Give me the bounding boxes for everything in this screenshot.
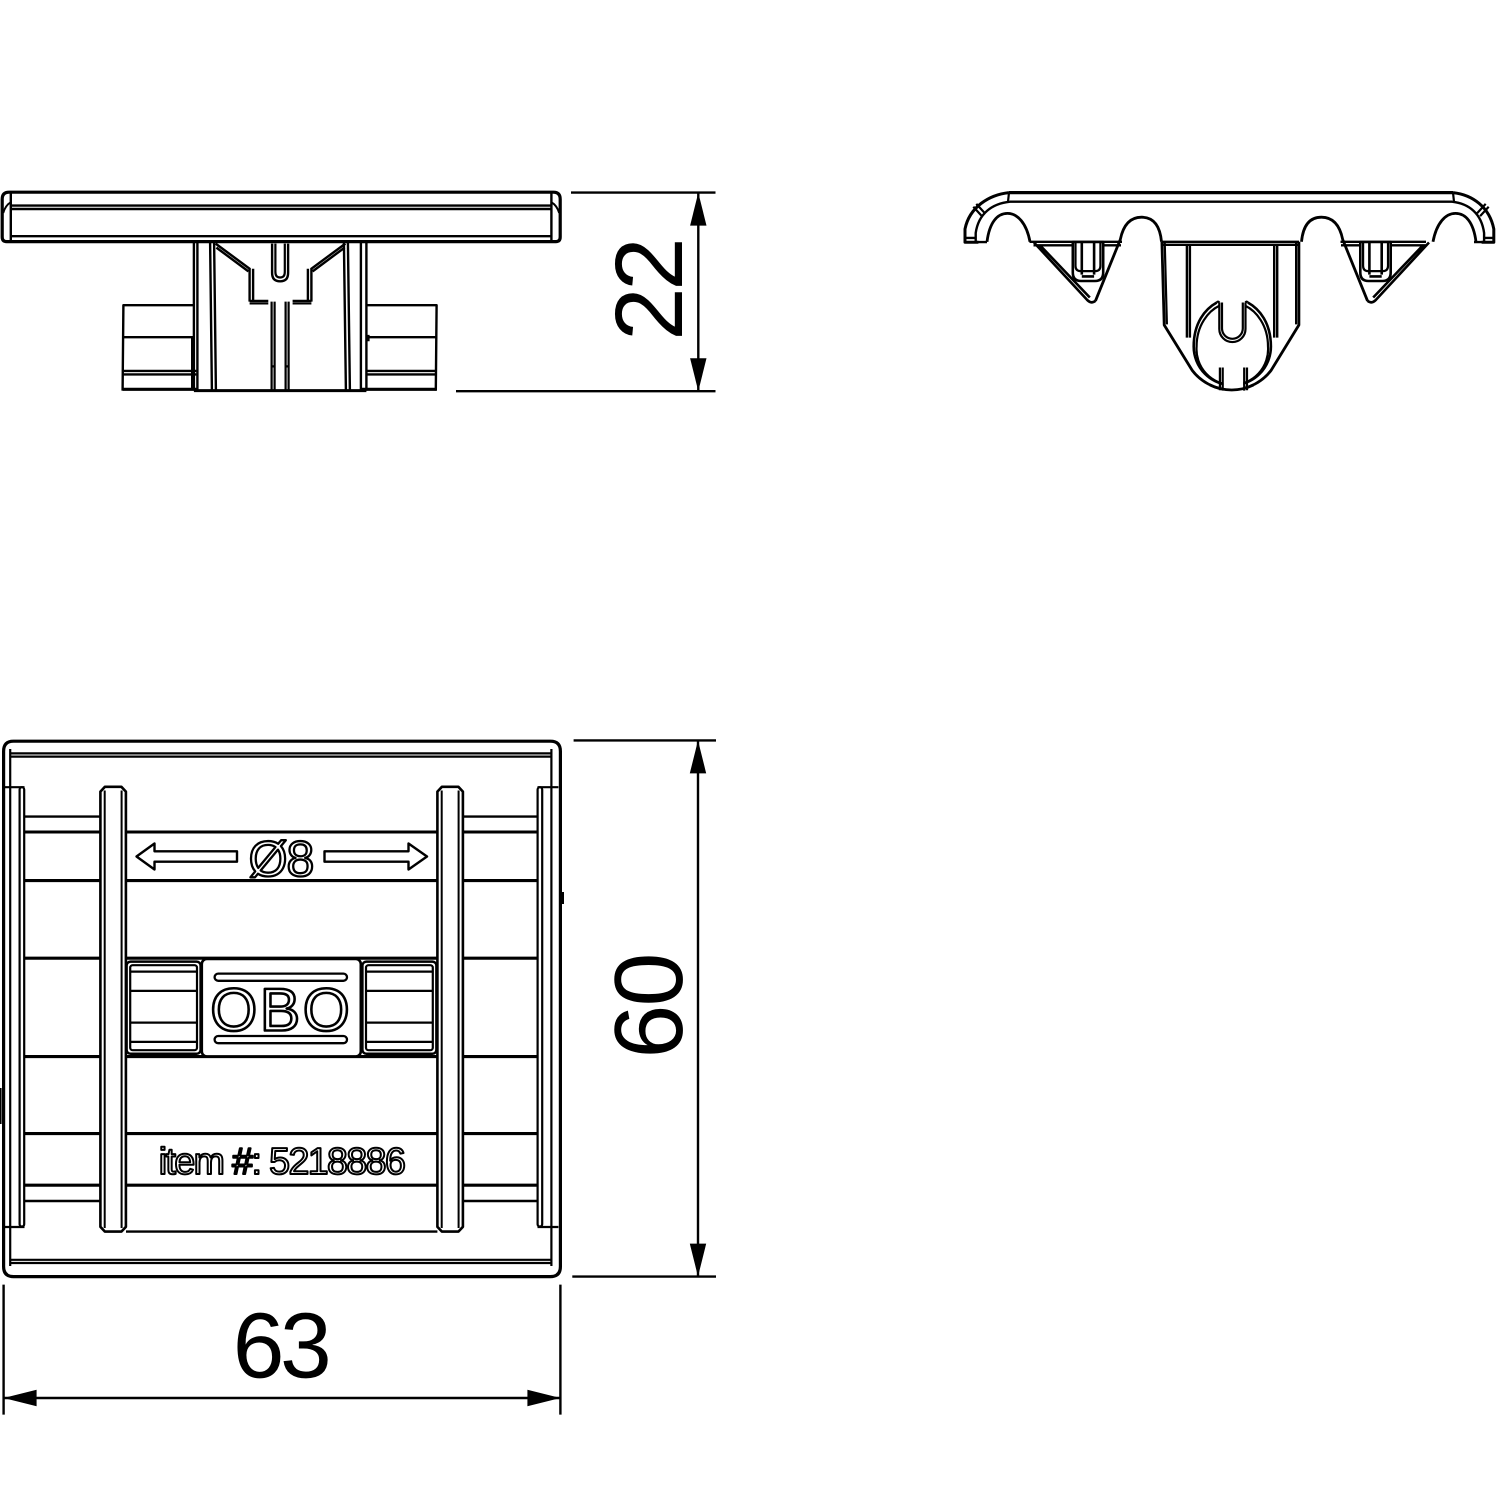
svg-text:item #: 5218886: item #: 5218886 [159, 1140, 405, 1182]
svg-text:OBO: OBO [210, 976, 352, 1044]
svg-text:60: 60 [594, 955, 703, 1059]
svg-text:22: 22 [596, 241, 703, 341]
svg-text:Ø8: Ø8 [249, 831, 314, 887]
svg-text:63: 63 [233, 1294, 328, 1398]
